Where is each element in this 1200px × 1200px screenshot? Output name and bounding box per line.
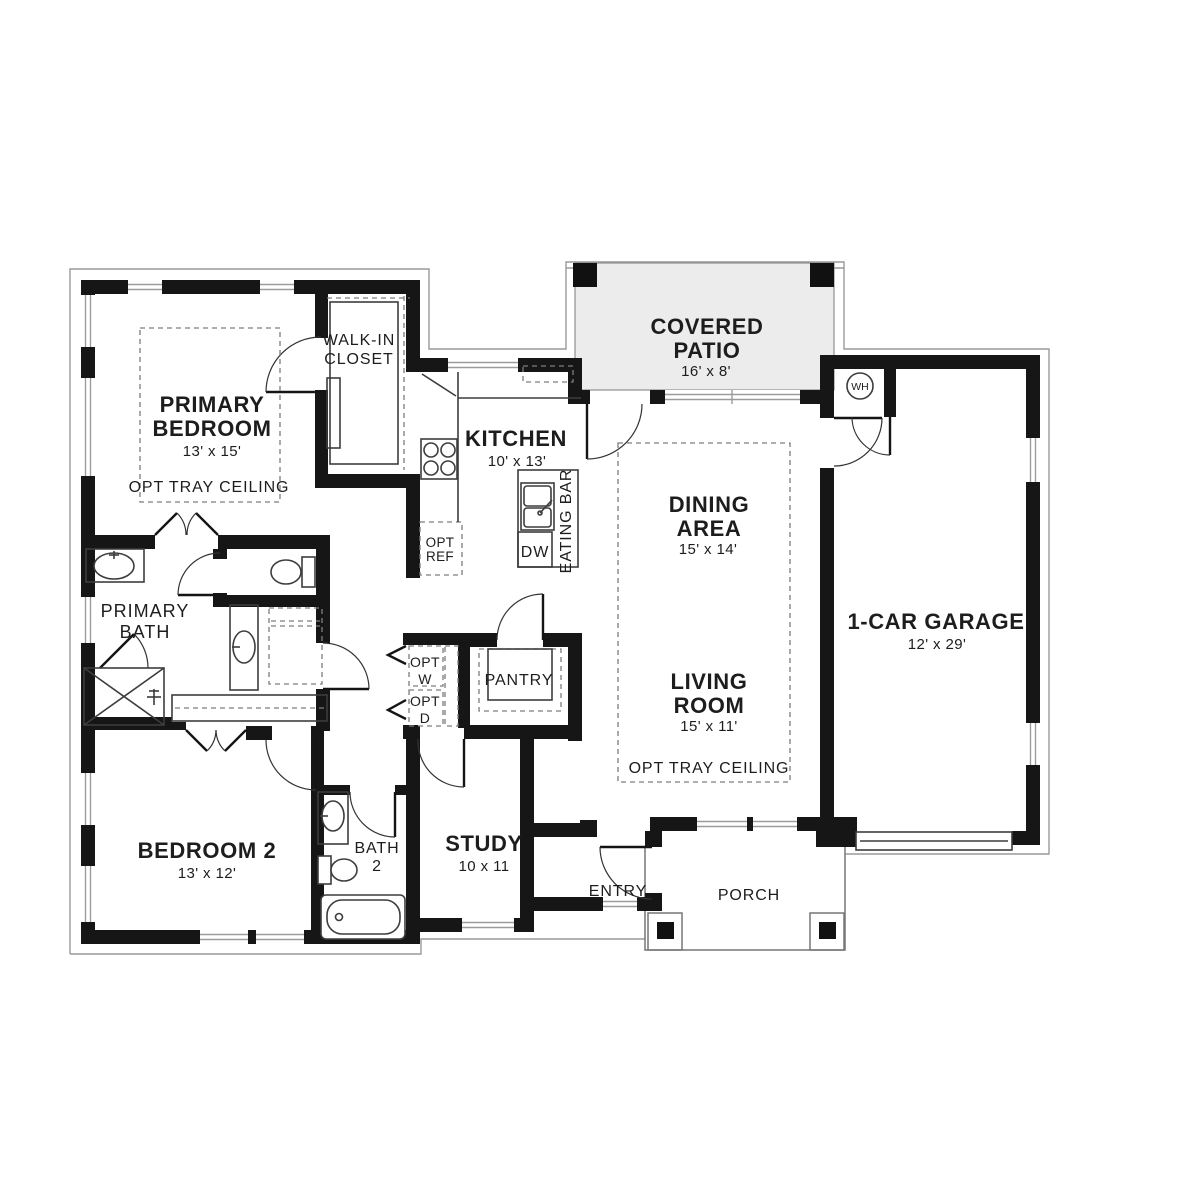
shower: [84, 668, 164, 725]
dining-dims: 15' x 14': [679, 541, 738, 558]
living-note: OPT TRAY CEILING: [629, 760, 790, 777]
kitchen-label: KITCHEN 10' x 13': [465, 426, 567, 470]
living-line1: LIVING: [671, 669, 748, 694]
kitchen-title: KITCHEN: [465, 426, 567, 451]
primary-bath-line1: PRIMARY: [101, 601, 190, 621]
eating-bar-label: EATING BAR: [558, 469, 575, 574]
living-dims: 15' x 11': [680, 718, 737, 735]
bath2-label: BATH 2: [354, 840, 399, 875]
primary-bath-line2: BATH: [120, 622, 171, 642]
primary-bath-label: PRIMARY BATH: [101, 601, 190, 642]
covered-patio-dims: 16' x 8': [681, 363, 731, 380]
covered-patio-line2: PATIO: [674, 338, 741, 363]
water-heater-label: WH: [851, 381, 869, 393]
entry-label: ENTRY: [589, 883, 647, 900]
opt-dryer-label: OPT D: [410, 693, 440, 726]
toilet-bowl: [271, 560, 301, 584]
bath2-toilet-bowl: [331, 859, 357, 881]
walk-in-closet-label: WALK-IN CLOSET: [323, 332, 395, 368]
bath2-line2: 2: [372, 858, 382, 875]
pantry-label: PANTRY: [485, 672, 554, 689]
floor-plan-page: PRIMARY BEDROOM 13' x 15' OPT TRAY CEILI…: [0, 0, 1200, 1200]
linen-closet-dash: [269, 608, 322, 684]
opt-w-line1: OPT: [410, 654, 440, 670]
opt-d-line1: OPT: [410, 693, 440, 709]
opt-ref-label: OPT REF: [426, 535, 455, 564]
bath2-fixtures: [318, 792, 405, 939]
primary-bedroom-label: PRIMARY BEDROOM 13' x 15' OPT TRAY CEILI…: [129, 392, 290, 496]
primary-bedroom-note: OPT TRAY CEILING: [129, 479, 290, 496]
bedroom2-label: BEDROOM 2 13' x 12': [138, 838, 277, 882]
opt-washer-label: OPT W: [410, 654, 440, 687]
dining-line1: DINING: [669, 492, 750, 517]
living-room-label: LIVING ROOM 15' x 11' OPT TRAY CEILING: [629, 669, 790, 777]
patio-post-right: [810, 263, 834, 287]
primary-bath-fixtures: [84, 549, 315, 725]
garage-dims: 12' x 29': [908, 636, 967, 653]
opt-d-line2: D: [420, 710, 431, 726]
garage-title: 1-CAR GARAGE: [847, 609, 1024, 634]
opt-ref-line1: OPT: [426, 535, 455, 550]
dishwasher-label: DW: [521, 544, 549, 561]
bath2-toilet-tank: [318, 856, 331, 884]
bedroom2-title: BEDROOM 2: [138, 838, 277, 863]
garage-label: 1-CAR GARAGE 12' x 29': [847, 609, 1024, 653]
porch-post-left: [657, 922, 674, 939]
study-dims: 10 x 11: [459, 858, 510, 875]
covered-patio-line1: COVERED: [651, 314, 764, 339]
bath2-line1: BATH: [354, 840, 399, 857]
dining-area-label: DINING AREA 15' x 14': [669, 492, 750, 558]
toilet-tank: [302, 557, 315, 587]
primary-bedroom-line2: BEDROOM: [152, 416, 271, 441]
floor-plan: PRIMARY BEDROOM 13' x 15' OPT TRAY CEILI…: [0, 0, 1200, 1200]
living-line2: ROOM: [674, 693, 745, 718]
porch-label: PORCH: [718, 887, 780, 904]
walk-in-closet-line1: WALK-IN: [323, 332, 395, 349]
study-title: STUDY: [445, 831, 523, 856]
patio-post-left: [573, 263, 597, 287]
walk-in-closet-line2: CLOSET: [324, 351, 393, 368]
kitchen-dims: 10' x 13': [488, 453, 547, 470]
cooktop: [421, 439, 457, 479]
study-label: STUDY 10 x 11: [445, 831, 523, 875]
opt-w-line2: W: [418, 671, 432, 687]
primary-bedroom-line1: PRIMARY: [160, 392, 265, 417]
bedroom2-dims: 13' x 12': [178, 865, 237, 882]
garage-door: [856, 832, 1012, 850]
porch-post-right: [819, 922, 836, 939]
opt-ref-line2: REF: [426, 549, 454, 564]
primary-bedroom-dims: 13' x 15': [183, 443, 242, 460]
dining-line2: AREA: [677, 516, 742, 541]
